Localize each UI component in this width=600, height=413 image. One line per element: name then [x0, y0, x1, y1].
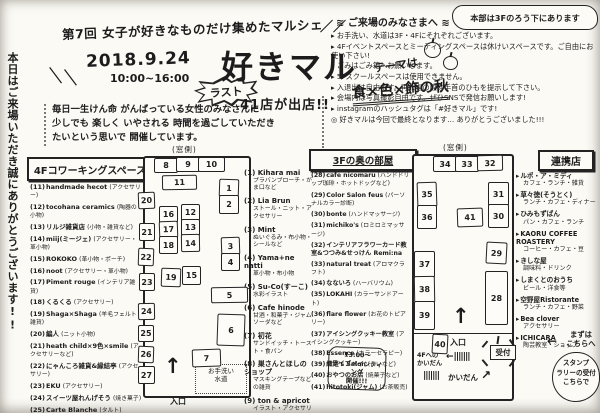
bullet-icon: ▸	[516, 276, 519, 284]
tilde-decor-icon: ≋	[441, 18, 449, 29]
first-here-line: まずは	[564, 330, 598, 339]
vendor-name: Lia Brun	[258, 197, 291, 205]
vendor-row: (35)LOKAHI (カラーサンドアート)	[311, 291, 410, 308]
vendor-number: (19)	[30, 310, 45, 318]
vendor-number: (18)	[30, 298, 45, 306]
vendor-row: (1) Kihara maiプラバンブローチ・がま口など	[244, 169, 312, 193]
vendor-row: (6) Cafe hinode甘酒・和菓子・ジャムソーダなど	[244, 304, 312, 328]
toilet-label: お手洗い	[198, 367, 244, 375]
window-side-label-4f: (窓側)	[172, 144, 197, 155]
vendor-name: Color Salon feus	[326, 192, 383, 199]
vendor-row: (41)hitotoki(ジャム) (お茶販売)	[311, 384, 410, 392]
booth-29: 29	[485, 241, 507, 264]
notice-item: ▸ 入退出は自由です。再入場の際は手首のひもを提示して下さい。	[331, 83, 595, 92]
vendor-name: くるくる	[46, 298, 72, 306]
vendor-number: (20)	[30, 330, 45, 338]
booth-28: 28	[485, 271, 508, 325]
entrance-label-4f: 入口	[170, 396, 186, 407]
vendor-row: (5) Su-Co(すーこ)水彩イラスト	[244, 283, 312, 299]
booth-25: 25	[138, 325, 154, 342]
vendor-number: (37)	[311, 331, 325, 338]
booth-27: 27	[138, 366, 155, 384]
vendor-name: ROKOKO	[46, 255, 77, 263]
bullet-icon: ▸	[516, 210, 519, 218]
partner-desc: コーヒー・カフェ・豆	[523, 246, 600, 254]
booth-11: 11	[162, 175, 197, 191]
vendor-name: Essence	[326, 350, 354, 357]
booth-14: 14	[181, 234, 200, 252]
booth-40: 40	[431, 334, 448, 355]
section-header-3f-back-room: 3Fの奥の部屋	[309, 149, 417, 171]
vendor-row: (36)flare flower (お花のトピアリー)	[311, 311, 410, 328]
vendor-number: (41)	[311, 384, 325, 391]
partner-row: ▸ルポ・ア・ミディカフェ・ランチ・雑貨	[516, 172, 600, 188]
stalls-1-10-list: (1) Kihara maiプラバンブローチ・がま口など (2) Lia Bru…	[244, 169, 312, 413]
booth-38: 38	[414, 276, 435, 303]
booth-32: 32	[477, 155, 503, 171]
partner-row: ▸きしな屋調味料・ドリンク	[516, 257, 600, 273]
vendor-name: miij(ミージェ)	[46, 235, 91, 243]
vendor-name: Kihara mai	[258, 169, 301, 177]
first-here-note: まずは こちらへ	[564, 330, 598, 349]
bullet-icon: ▸	[516, 191, 519, 199]
vendor-desc: ストール・ニット・アクセサリー	[253, 206, 312, 221]
stamp-rally-note: スタンプ ラリーの受付 こちらで	[552, 352, 600, 402]
booth-36: 36	[417, 205, 437, 229]
back-room-vendor-list: (28)cafe nicomaru (ハンドドリップ珈琲・ホットドッグなど) (…	[311, 172, 410, 395]
partner-desc: カフェ・ランチ・雑貨	[523, 180, 600, 188]
vendor-name: スイーツ屋れんげそう	[46, 394, 111, 402]
booth-4: 4	[221, 253, 240, 271]
vendor-desc: (アクセサリー・革小物)	[65, 269, 128, 275]
toilet-area-4f: お手洗い 水道	[195, 364, 247, 394]
vendor-name: tocohana ceramics	[46, 203, 115, 211]
booth-41: 41	[457, 208, 484, 228]
vendor-desc: (小物・雑貨など)	[87, 225, 133, 231]
vendor-name: noot	[46, 267, 63, 275]
notice-heading-text: ご来場のみなさまへ	[348, 18, 438, 29]
vendor-desc: (タルト)	[99, 408, 121, 413]
vendor-name: おやつのお店	[326, 372, 363, 379]
booth-2: 2	[219, 195, 239, 214]
vendor-row: (30)bonte (ハンドマッサージ)	[311, 211, 410, 219]
booth-8: 8	[154, 158, 178, 173]
partner-row: ▸空野屋Ristoranteランチ・カフェ・野菜	[516, 296, 600, 312]
vendor-desc: マスキングテープなどの雑貨	[253, 377, 312, 392]
vendor-name: Shaga×Shaga	[46, 310, 97, 318]
hq-location-note: 本部は3Fのろう下にあります	[452, 5, 598, 30]
vendor-row: (23)EKU (アクセサリー)	[30, 383, 142, 391]
event-date: 2018.9.24	[86, 48, 191, 72]
vendor-number: (3)	[244, 226, 255, 234]
partner-store-list: ▸ルポ・ア・ミディカフェ・ランチ・雑貨 ▸草々徳(そうとく)ランチ・カフェ・ディ…	[516, 172, 600, 353]
vendor-row: (17)Piment rouge (インテリア雑貨)	[30, 279, 142, 295]
vendor-name: 編人	[46, 330, 59, 338]
vendor-row: (33)natural treat (アロマクラフト)	[311, 261, 410, 278]
booth-31: 31	[488, 182, 509, 206]
vendor-name: heath child×9色×smile	[46, 342, 128, 350]
vendor-number: (31)	[311, 222, 325, 229]
partner-name: ひみもずぱん	[520, 210, 560, 218]
notice-item: ▸ お手洗い、水道は3F・4Fにそれぞれございます。	[331, 31, 595, 40]
vendor-row: (19)Shaga×Shaga (羊毛フェルト雑貨)	[30, 311, 142, 327]
vendor-number: (15)	[30, 255, 45, 263]
booth-15: 15	[182, 266, 201, 285]
notice-item: ▸ 会場内は写真撮影自由です。ぜひSNSで発信お願いします!	[331, 93, 595, 102]
vendor-name: natural treat	[326, 261, 371, 268]
booth-23: 23	[139, 273, 155, 291]
vendor-desc: 水彩イラスト	[253, 292, 312, 299]
partner-row: ▸しまくとのおうちビール・洋食等	[516, 276, 600, 292]
vendor-desc: (アクセサリー)	[74, 300, 114, 306]
stairs-to-4f-line: かいだん	[417, 360, 442, 368]
vendor-name: flare flower	[326, 311, 366, 318]
vendor-number: (14)	[30, 235, 45, 243]
vendor-row: (20)編人 (ニット小物)	[30, 331, 142, 339]
vendor-desc: (占いなど)	[368, 362, 396, 368]
vendor-row: (29)Color Salon feus (パーソナルカラー診断)	[311, 192, 410, 209]
booth-33: 33	[455, 156, 479, 172]
vendor-desc: (ハンドマッサージ)	[349, 212, 401, 218]
booth-18: 18	[159, 236, 178, 254]
vendor-row: (40)おやつのお店 (焼菓子など)	[311, 372, 410, 380]
vendor-number: (33)	[311, 261, 325, 268]
vendor-number: (11)	[30, 183, 45, 191]
slash-decor-left-icon: ＼＼	[47, 64, 80, 89]
mission-line: たいという思いで 開催しています。	[52, 131, 340, 145]
booth-26: 26	[138, 346, 155, 364]
entrance-label-3f: 入口	[450, 337, 466, 348]
notice-item: ▸ 4Fイベントスペースとミーティングスペースは休けいスペースです。ご自由にお使…	[331, 42, 595, 60]
vendor-desc: サンドイッチ・トースト・食パン	[253, 341, 312, 356]
mission-line: 少しでも 楽しく いやされる 時間を過ごしていただき	[52, 117, 340, 131]
vendor-number: (13)	[30, 223, 45, 231]
booth-22: 22	[138, 248, 155, 267]
vendor-number: (39)	[311, 361, 325, 368]
entrance-arrow-4f-icon: ↑	[164, 356, 182, 377]
booth-39: 39	[414, 301, 435, 330]
vendor-desc: 甘酒・和菓子・ジャムソーダなど	[253, 313, 312, 328]
vendor-number: (40)	[311, 372, 325, 379]
vendor-name: Su-Co(すーこ)	[258, 283, 308, 291]
vendor-row: (32)インテリアフラワーカード教室&つつみ&せっけん Remi:na	[311, 242, 410, 258]
booth-30: 30	[488, 204, 509, 228]
vendor-number: (9)	[244, 397, 255, 405]
vendor-row: (25)Carte Blanche (タルト)	[30, 407, 142, 413]
partner-row: ▸ひみもずぱんパン・カフェ・ランチ	[516, 210, 600, 226]
vendor-name: Cafe hinode	[258, 304, 305, 312]
vendor-number: (32)	[311, 242, 325, 249]
bullet-icon: ▸	[516, 172, 519, 180]
left-vertical-message: 本日はご来場いただき誠にありがとうございます!!	[4, 52, 20, 404]
stairs-label: かいだん	[448, 372, 478, 383]
vendor-number: (2)	[244, 197, 255, 205]
vendor-number: (1)	[244, 169, 255, 177]
notice-item: ◎ 好きマルは今回で最終となります… ありがとうございました!!!	[331, 115, 595, 124]
tilde-decor-icon: ≋	[336, 18, 344, 29]
vendor-name: 初花	[258, 332, 272, 340]
vendor-row: (15)ROKOKO (革小物・ポーチ)	[30, 256, 142, 264]
section-header-4f-coworking: 4Fコワーキングスペース	[27, 157, 153, 181]
vendor-name: hitotoki(ジャム)	[326, 384, 377, 391]
bullet-icon: ▸	[516, 334, 519, 342]
vendor-name: なないろ	[326, 280, 351, 287]
room-divider-3f	[412, 333, 512, 334]
vendor-desc: (ハーバリウム)	[353, 281, 393, 287]
mission-line: 毎日一生けん命 がんばっている女性のみなさんに	[52, 103, 340, 117]
booth-7: 7	[192, 348, 222, 367]
mission-statement: 毎日一生けん命 がんばっている女性のみなさんに 少しでも 楽しく いやされる 時…	[52, 103, 340, 145]
dotted-divider	[44, 104, 46, 146]
coworking-vendor-list: (11)handmade hecot (アクセサリー) (12)tocohana…	[30, 184, 142, 413]
vendor-row: (18)くるくる (アクセサリー)	[30, 299, 142, 307]
hatch-marks-icon: |||||||	[454, 352, 470, 362]
vendor-desc: (カラーセラピー)	[356, 351, 402, 357]
partner-name: ルポ・ア・ミディ	[520, 172, 572, 180]
partner-desc: 調味料・ドリンク	[523, 265, 600, 273]
vendor-row: (12)tocohana ceramics (陶器の小物)	[30, 204, 142, 220]
vendor-row: (28)cafe nicomaru (ハンドドリップ珈琲・ホットドッグなど)	[311, 172, 410, 189]
vendor-row: (21)heath child×9色×smile (アクセサリーなど)	[30, 343, 142, 359]
stairs-to-4f-label: 4Fへの かいだん	[417, 352, 442, 368]
partner-desc: ランチ・カフェ・野菜	[523, 304, 600, 312]
vendor-number: (25)	[30, 406, 45, 413]
stamp-rally-line: スタンプ	[553, 359, 599, 369]
vendor-row: (37)アイシングクッキー教室 (アイシングクッキー)	[311, 331, 410, 348]
stamp-rally-line: こちらで	[553, 378, 599, 388]
reception-box: 受付	[490, 345, 516, 360]
partner-row: ▸草々徳(そうとく)ランチ・カフェ・ディナー	[516, 191, 600, 207]
vendor-desc: (アクセサリー)	[63, 384, 103, 390]
vendor-row: (22)にゃんころ雑貨&縁結亭 (アクセサリー)	[30, 363, 142, 379]
curved-arrow-icon: ↗	[481, 368, 491, 382]
booth-20: 20	[138, 192, 156, 210]
vendor-number: (30)	[311, 211, 325, 218]
bullet-icon: ▸	[516, 315, 519, 323]
vendor-number: (36)	[311, 311, 325, 318]
partner-name: しまくとのおうち	[520, 276, 573, 284]
notice-heading: ≋ ご来場のみなさまへ ≋	[336, 14, 450, 29]
vendor-row: (11)handmade hecot (アクセサリー)	[30, 184, 142, 200]
vendor-row: (38)Essence (カラーセラピー)	[311, 350, 410, 358]
vendor-name: 織姫's Salon	[326, 361, 366, 368]
vendor-name: LOKAHI	[326, 291, 352, 298]
booth-34: 34	[433, 156, 457, 172]
vendor-number: (7)	[244, 332, 255, 340]
vendor-number: (4)	[244, 254, 255, 262]
vendor-desc: (革小物・ポーチ)	[79, 257, 125, 263]
vendor-name: bonte	[326, 211, 346, 218]
vendor-name: リルジ雑貨店	[46, 223, 85, 231]
vendor-row: (31)michiko's (ロミロミマッサージ)	[311, 222, 410, 239]
vendor-row: (8) 巣さんとほしのショップマスキングテープなどの雑貨	[244, 360, 312, 392]
first-here-line: こちらへ	[564, 339, 598, 348]
arrow-left-icon: ←	[547, 334, 557, 348]
vendor-name: Piment rouge	[46, 278, 96, 286]
vendor-number: (17)	[30, 278, 45, 286]
vendor-row: (3) Mintぬいぐるみ・布小物・シールなど	[244, 226, 312, 250]
vendor-desc: (ニット小物)	[61, 332, 95, 338]
vendor-number: (28)	[311, 172, 325, 179]
vendor-desc: (お茶販売)	[379, 385, 407, 391]
vendor-desc: プラバンブローチ・がま口など	[253, 178, 312, 193]
series-title: 第7回 女子が好きなものだけ集めたマルシェ	[62, 14, 324, 43]
vendor-number: (35)	[311, 291, 325, 298]
notice-list: ▸ お手洗い、水道は3F・4Fにそれぞれございます。 ▸ 4Fイベントスペースと…	[331, 31, 595, 125]
notice-item: ▸ ごみはごみ箱へお願いします。	[331, 61, 595, 70]
booth-6: 6	[216, 314, 245, 347]
section-header-partners: 連携店	[538, 150, 594, 171]
vendor-name: michiko's	[326, 222, 359, 229]
partner-name: Bea clover	[520, 315, 559, 323]
vendor-name: EKU	[46, 382, 61, 390]
vendor-desc: (焼菓子など)	[365, 373, 399, 379]
vendor-row: (24)スイーツ屋れんげそう (焼き菓子)	[30, 395, 142, 403]
partner-row: ▸KAORU COFFEE ROASTERYコーヒー・カフェ・豆	[516, 230, 600, 254]
vendor-name: cafe nicomaru	[326, 172, 375, 179]
vendor-desc: イラスト・アクセサリー	[253, 406, 312, 413]
bullet-icon: ▸	[516, 230, 519, 238]
vendor-name: Mint	[258, 226, 276, 234]
partner-name: きしな屋	[520, 257, 546, 265]
vendor-number: (6)	[244, 304, 255, 312]
vendor-number: (24)	[30, 394, 45, 402]
vendor-row: (2) Lia Brunストール・ニット・アクセサリー	[244, 197, 312, 221]
bullet-icon: ▸	[516, 296, 519, 304]
vendor-row: (13)リルジ雑貨店 (小物・雑貨など)	[30, 224, 142, 232]
vendor-row: (39)織姫's Salon (占いなど)	[311, 361, 410, 369]
vendor-number: (23)	[30, 382, 45, 390]
vendor-number: (16)	[30, 267, 45, 275]
bullet-icon: ▸	[516, 257, 519, 265]
vendor-row: (34)なないろ (ハーバリウム)	[311, 280, 410, 288]
vendor-name: ton & apricot	[258, 397, 310, 405]
window-side-label-3f: (窓側)	[443, 142, 468, 153]
vendor-name: インテリアフラワーカード教室&つつみ&せっけん Remi:na	[311, 242, 407, 257]
dotted-divider	[322, 96, 324, 148]
booth-19: 19	[161, 268, 182, 288]
booth-24: 24	[138, 303, 155, 320]
booth-9: 9	[176, 157, 200, 172]
vendor-row: (7) 初花サンドイッチ・トースト・食パン	[244, 332, 312, 356]
booth-37: 37	[414, 251, 435, 278]
partner-row: ▸Bea cloverアクセサリー	[516, 315, 600, 331]
booth-5: 5	[211, 287, 248, 304]
vendor-row: (14)miij(ミージェ) (アクセサリー・革小物)	[30, 236, 142, 252]
vendor-desc: (焼き菓子)	[113, 396, 141, 402]
partner-desc: ランチ・カフェ・ディナー	[523, 199, 600, 207]
vendor-row: (16)noot (アクセサリー・革小物)	[30, 268, 142, 276]
booth-21: 21	[139, 223, 155, 241]
vendor-number: (34)	[311, 280, 325, 287]
partner-name: 空野屋Ristorante	[520, 296, 579, 304]
vendor-desc: 革小物・布小物	[253, 271, 312, 278]
flyer-page: 本日はご来場いただき誠にありがとうございます!! ＼＼ 第7回 女子が好きなもの…	[0, 0, 600, 413]
stamp-rally-line: ラリーの受付	[553, 369, 599, 379]
vendor-row: (4) Yama+ne natti革小物・布小物	[244, 254, 312, 278]
toilet-label: 水道	[198, 375, 244, 383]
vendor-desc: ぬいぐるみ・布小物・シールなど	[253, 235, 312, 250]
stairs-hatch-icon: ←|||||||	[446, 352, 470, 362]
booth-35: 35	[417, 182, 438, 208]
entrance-arrow-3f-icon: ↑	[452, 306, 470, 327]
booth-10: 10	[198, 157, 225, 172]
vendor-number: (38)	[311, 350, 325, 357]
vendor-number: (22)	[30, 362, 45, 370]
partner-desc: パン・カフェ・ランチ	[523, 219, 600, 227]
partner-name: KAORU COFFEE ROASTERY	[516, 230, 577, 246]
event-time: 10:00~16:00	[110, 72, 189, 85]
vendor-number: (12)	[30, 203, 45, 211]
partner-desc: ビール・洋食等	[523, 285, 600, 293]
vendor-name: にゃんころ雑貨&縁結亭	[46, 362, 117, 370]
notice-item: ▸ 5Fスクールスペースは使用できません。	[331, 72, 595, 81]
vendor-name: アイシングクッキー教室	[326, 331, 394, 338]
vendor-number: (29)	[311, 192, 325, 199]
vendor-name: Carte Blanche	[46, 406, 97, 413]
vendor-name: handmade hecot	[46, 183, 107, 191]
hatch-marks-icon: |||||||	[423, 371, 439, 381]
vendor-row: (9) ton & apricotイラスト・アクセサリー	[244, 397, 312, 413]
notice-item: ▸ instagramのハッシュタグは「#好きマル」です!	[331, 104, 595, 113]
vendor-number: (21)	[30, 342, 45, 350]
